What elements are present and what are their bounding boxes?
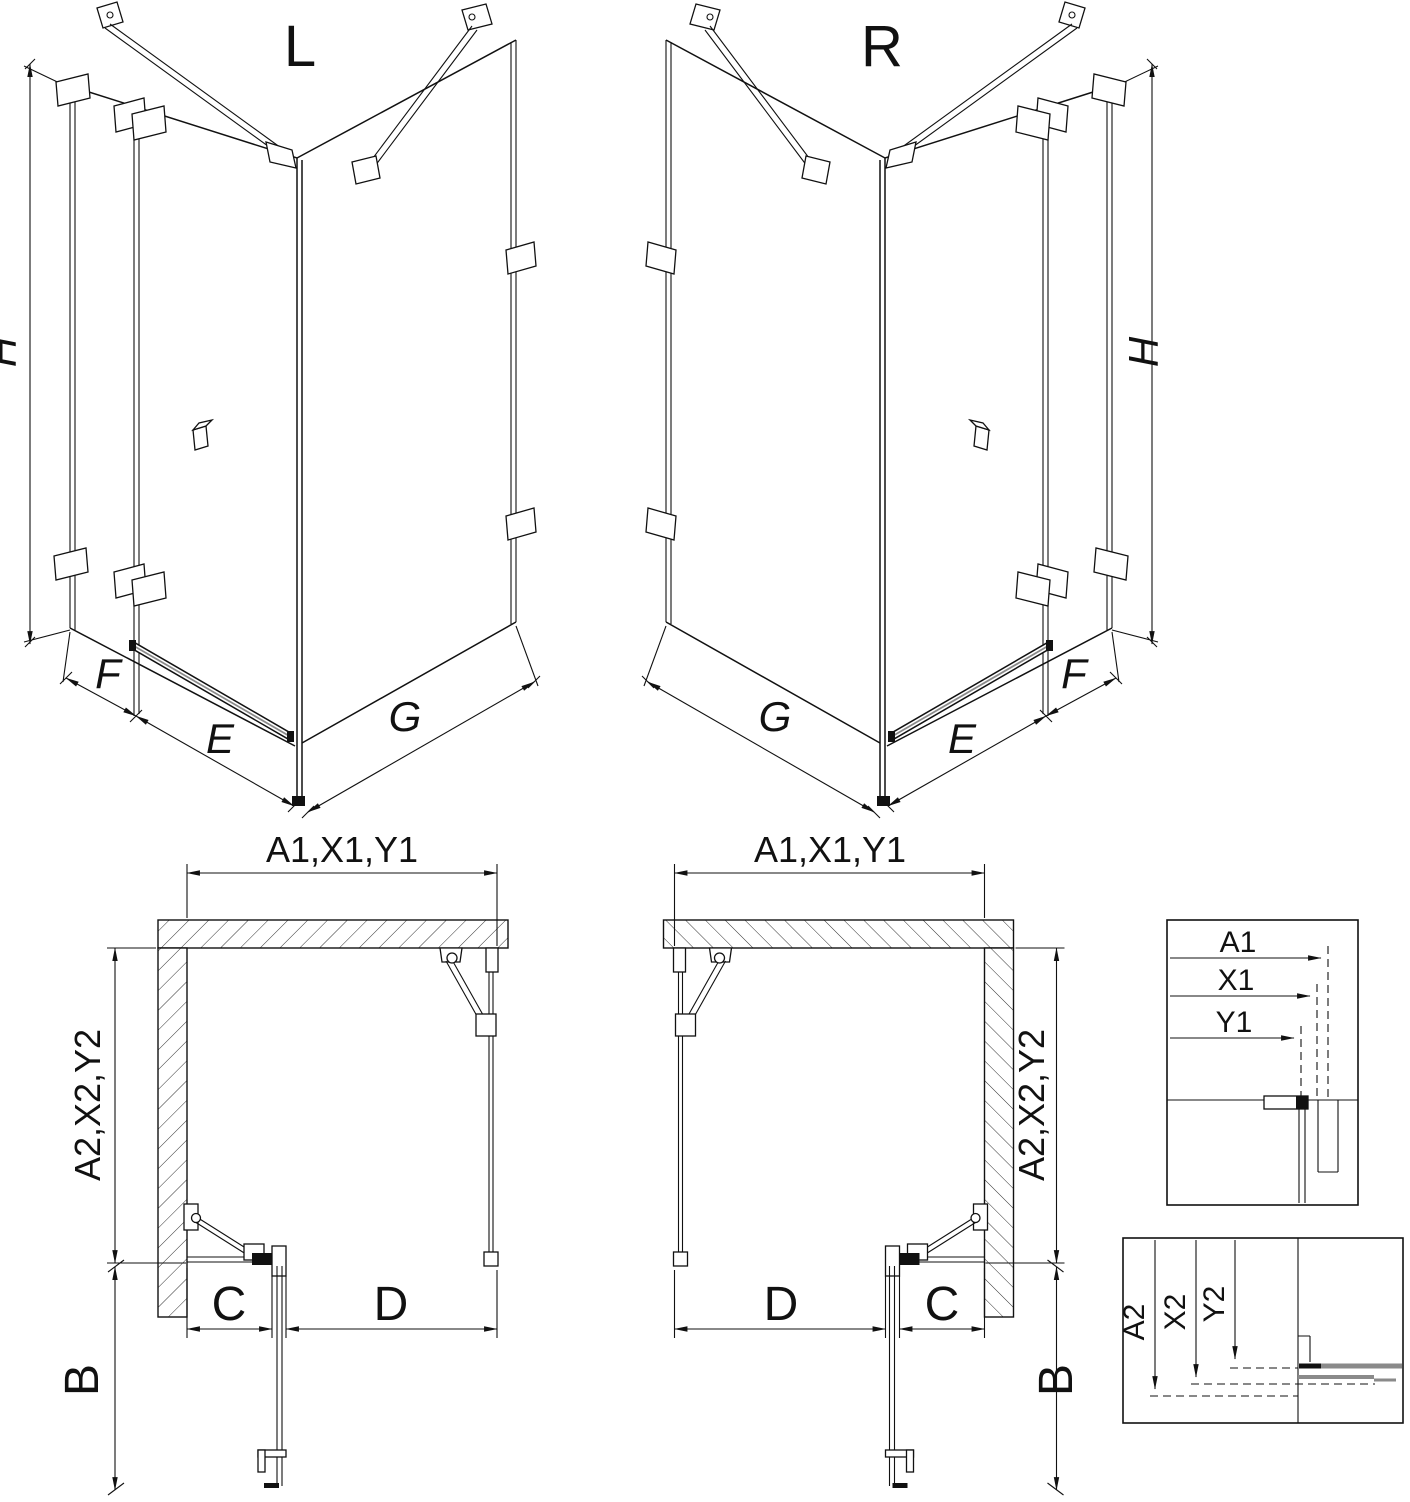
plan-view-left: A1,X1,Y1 A2,X2,Y2 B C D <box>56 829 508 1495</box>
detail-width-frame <box>1167 920 1358 1205</box>
detail-depth-dashed-refs <box>1150 1368 1375 1396</box>
detail-x1-label: X1 <box>1218 964 1255 997</box>
technical-drawing-canvas: L H F E G R H G E F A1,X1,Y1 A2,X2,Y2 B … <box>0 0 1410 1502</box>
plan-right-b-label: B <box>1030 1364 1083 1396</box>
iso-right-height-label: H <box>1120 336 1167 367</box>
detail-width-clamp-dark <box>1296 1096 1308 1109</box>
iso-view-left: L H F E G <box>0 2 540 818</box>
detail-a1-label: A1 <box>1220 926 1257 959</box>
iso-right-f-label: F <box>1061 650 1089 697</box>
iso-left-e-label: E <box>206 715 235 762</box>
plan-left-width-label: A1,X1,Y1 <box>266 829 418 870</box>
detail-x2-label: X2 <box>1159 1294 1192 1331</box>
iso-left-g-label: G <box>389 693 422 740</box>
plan-left-d-label: D <box>374 1278 409 1331</box>
plan-right-depth-label: A2,X2,Y2 <box>1011 1029 1052 1181</box>
detail-width-dashed-refs <box>1301 946 1328 1100</box>
spec-sheet: L H F E G R H G E F A1,X1,Y1 A2,X2,Y2 B … <box>0 0 1410 1502</box>
iso-right-title: R <box>861 14 903 79</box>
plan-right-d-label: D <box>764 1278 799 1331</box>
iso-view-right: R H G E F <box>642 2 1167 818</box>
detail-y2-label: Y2 <box>1198 1286 1231 1323</box>
detail-width-glass-section <box>1299 1100 1338 1203</box>
detail-y1-label: Y1 <box>1216 1006 1253 1039</box>
plan-left-depth-label: A2,X2,Y2 <box>67 1029 108 1181</box>
iso-left-height-label: H <box>0 336 25 367</box>
plan-right-width-label: A1,X1,Y1 <box>754 829 906 870</box>
iso-left-f-label: F <box>95 650 123 697</box>
plan-left-c-label: C <box>212 1278 247 1331</box>
detail-depth-step <box>1298 1336 1310 1362</box>
plan-right-c-label: C <box>925 1278 960 1331</box>
iso-right-e-label: E <box>948 715 977 762</box>
iso-left-title: L <box>284 14 316 79</box>
plan-right-drawing <box>664 864 1065 1495</box>
plan-view-right: A1,X1,Y1 A2,X2,Y2 B D C <box>664 829 1084 1495</box>
detail-box-depth: A2 X2 Y2 <box>1118 1238 1403 1423</box>
detail-a2-label: A2 <box>1118 1304 1151 1341</box>
plan-left-drawing <box>107 864 508 1495</box>
detail-box-width: A1 X1 Y1 <box>1167 920 1358 1205</box>
iso-right-g-label: G <box>759 693 792 740</box>
plan-left-b-label: B <box>56 1364 109 1396</box>
